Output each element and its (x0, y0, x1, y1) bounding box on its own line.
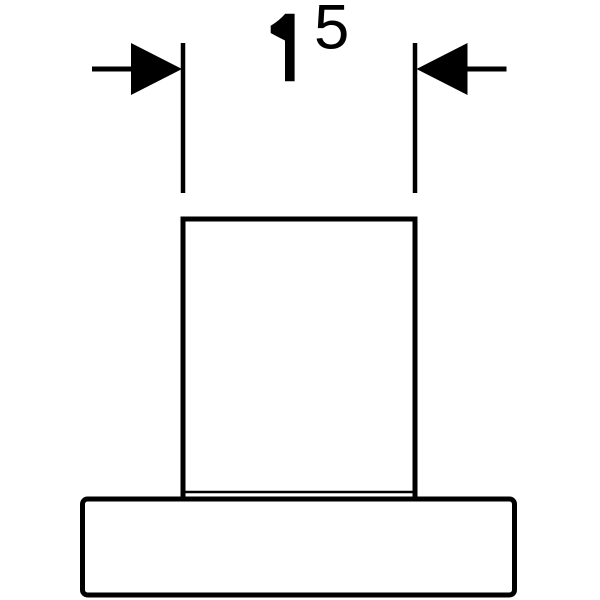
svg-text:5: 5 (314, 0, 349, 63)
